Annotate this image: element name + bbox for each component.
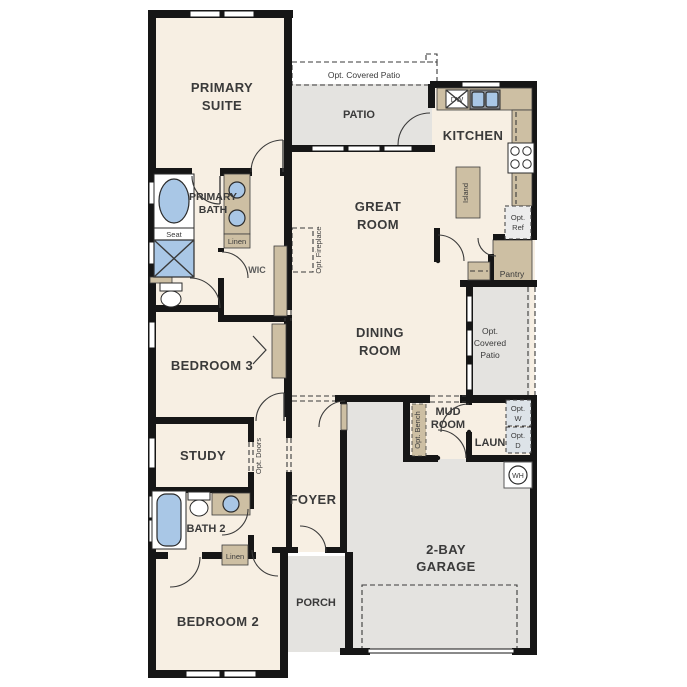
bedroom2-label: BEDROOM 2 [177,614,259,629]
primary-suite-label: PRIMARY [191,80,253,95]
window [224,11,254,17]
patio-label: PATIO [343,109,375,121]
opt-dryer-label: Opt. [511,431,525,440]
opt-ref-label: Ref [512,223,525,232]
opt-doors-label: Opt. Doors [254,438,263,475]
opt-covered-patio-top-nub [426,54,437,62]
bath2-label: BATH 2 [187,523,226,535]
window [312,146,344,151]
window [186,671,220,677]
window [467,364,472,390]
wic-label: WIC [248,265,266,275]
dining-room-label: ROOM [359,343,401,358]
kitchen-label: KITCHEN [443,128,504,143]
opt-covered-patio-right-label: Opt. [482,326,498,336]
primary-suite-label: SUITE [202,98,242,113]
dining-room-label: DINING [356,325,404,340]
linen2-label: Linen [226,552,244,561]
porch-label: PORCH [296,597,336,609]
garage-label: 2-BAY [426,542,466,557]
mud-room-label: ROOM [431,419,465,431]
bedroom3-label: BEDROOM 3 [171,358,253,373]
window [224,671,256,677]
primary-shower-icon [154,240,194,277]
floor-plan: PRIMARY SUITE Opt. Covered Patio PATIO K… [0,0,687,687]
floor-plan-canvas: PRIMARY SUITE Opt. Covered Patio PATIO K… [0,0,687,687]
mud-room-label: MUD [435,406,460,418]
window [462,82,500,87]
opt-covered-patio-top-label: Opt. Covered Patio [328,70,401,80]
opt-washer-label: Opt. [511,404,525,413]
pantry-label: Pantry [500,269,525,279]
window [467,296,472,322]
opt-covered-patio-right-label: Covered [474,338,506,348]
water-heater-label: WH [512,473,524,480]
study-label: STUDY [180,448,226,463]
window [149,438,155,468]
garage-door [368,649,514,653]
opt-fireplace-label: Opt. Fireplace [314,226,323,273]
opt-covered-patio-right-label: Patio [480,350,500,360]
primary-tub-icon [159,179,189,223]
window [190,11,220,17]
opt-dryer-label: D [515,441,521,450]
seat-label: Seat [166,230,182,239]
cooktop-icon [508,143,534,173]
great-room-label: ROOM [357,217,399,232]
room-foyer [288,402,345,552]
bath2-sink-icon [223,496,239,512]
primary-toilet-icon [160,283,182,307]
bed3-closet-shelf [272,324,286,378]
window [467,330,472,356]
foyer-garage-door-jamb [341,404,347,430]
laundry-label: LAUN [475,437,506,449]
island-label: Island [461,183,470,203]
bath2-toilet-icon [188,492,210,516]
foyer-label: FOYER [290,492,337,507]
opt-ref-label: Opt. [511,213,525,222]
window [348,146,380,151]
toilet-shelf [150,277,172,283]
window [384,146,412,151]
window [149,322,155,348]
linen-label: Linen [228,237,246,246]
great-room-label: GREAT [355,199,402,214]
dishwasher-label: DW [451,95,464,104]
vanity-sink-icon [229,210,245,226]
wic-shelf [274,246,287,316]
opt-washer-label: W [514,414,522,423]
primary-bath-label: BATH [199,204,227,216]
bath2-tub-icon [157,494,181,546]
primary-bath-label: PRIMARY [189,191,237,203]
opt-bench-label: Opt. Bench [413,411,422,449]
kitchen-sink-icon [470,90,500,109]
garage-label: GARAGE [416,559,475,574]
